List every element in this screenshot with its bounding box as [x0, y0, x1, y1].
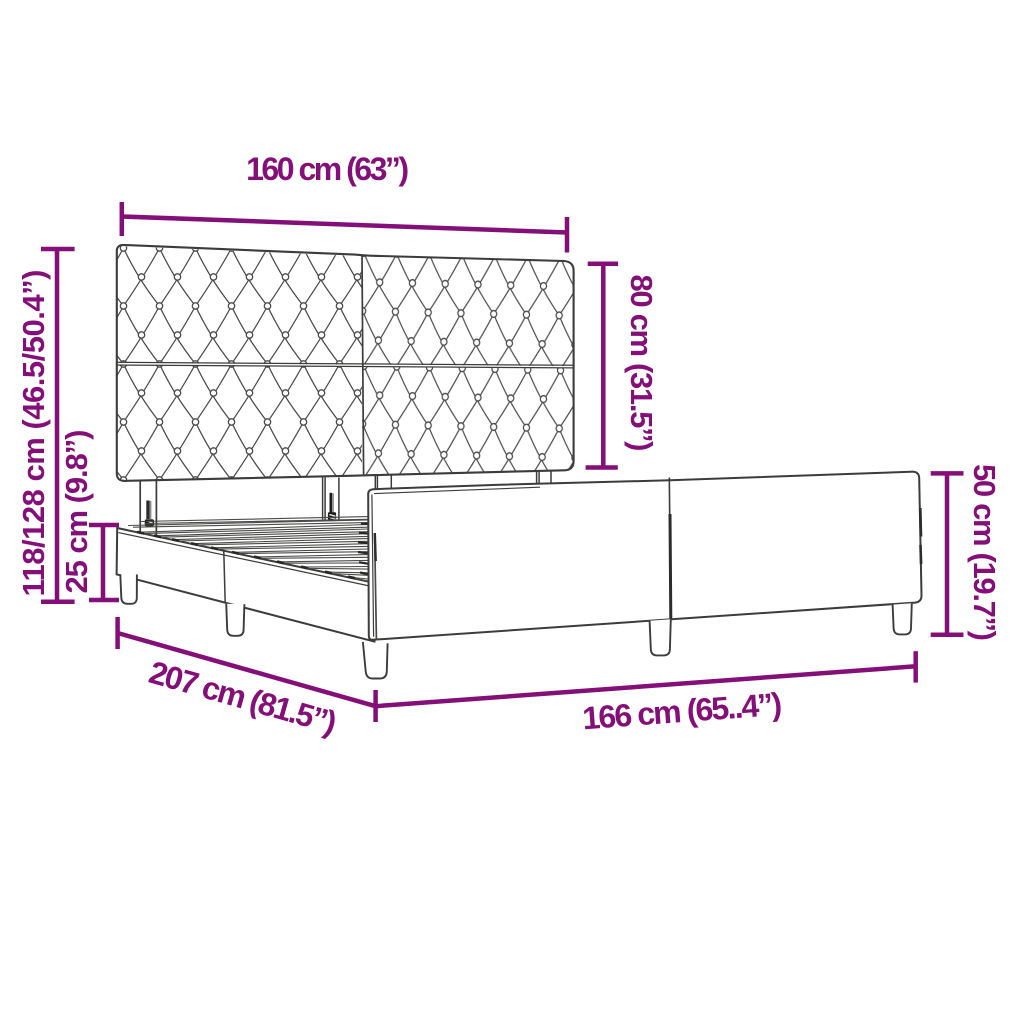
svg-text:166 cm (65..4”): 166 cm (65..4”)	[581, 686, 783, 737]
svg-text:50 cm (19.7”): 50 cm (19.7”)	[967, 464, 1002, 641]
svg-text:118/128 cm (46.5/50.4”): 118/128 cm (46.5/50.4”)	[16, 270, 51, 597]
svg-text:160 cm (63”): 160 cm (63”)	[246, 151, 409, 187]
svg-text:25 cm (9.8”): 25 cm (9.8”)	[59, 430, 94, 594]
svg-text:80 cm (31.5”): 80 cm (31.5”)	[624, 275, 659, 452]
